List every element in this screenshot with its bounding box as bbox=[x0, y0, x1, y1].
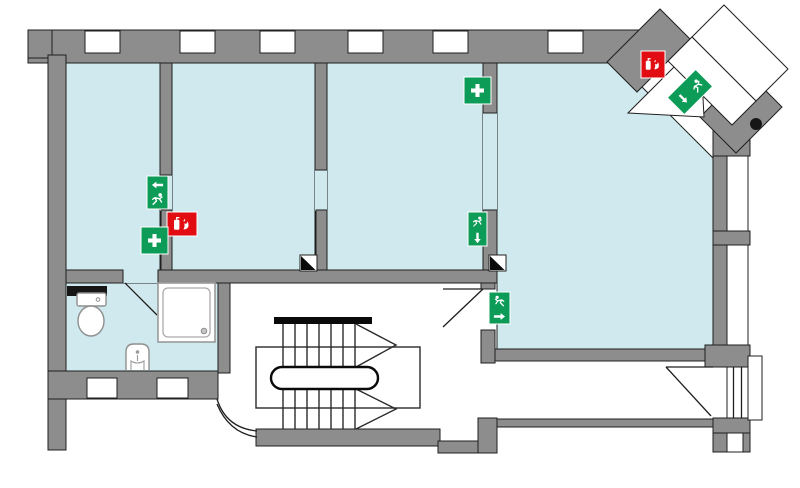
window-top-4 bbox=[348, 31, 383, 53]
window-top-5 bbox=[433, 31, 468, 53]
exit-sign-room1 bbox=[147, 176, 168, 209]
pillar-bottom bbox=[478, 418, 497, 453]
window-top-1 bbox=[85, 31, 120, 53]
first-aid-sign-room1 bbox=[141, 227, 168, 254]
wall-room1-room2-upper bbox=[160, 63, 172, 175]
pillar-corridor-top bbox=[481, 283, 495, 289]
first-aid-sign-main-room bbox=[464, 77, 491, 104]
wall-stairwell-step bbox=[438, 441, 478, 453]
fire-extinguisher-sign-entrance bbox=[641, 51, 665, 78]
floor-plan-page bbox=[0, 0, 800, 483]
wall-right-inner-2 bbox=[713, 245, 727, 345]
wall-rooms-bottom-left bbox=[66, 270, 123, 283]
floor-plan bbox=[0, 0, 800, 483]
wall-right-pier-1 bbox=[713, 231, 750, 245]
room-3 bbox=[327, 63, 483, 272]
window-top-3 bbox=[260, 31, 295, 53]
window-right-3 bbox=[727, 433, 743, 452]
stair-handrail bbox=[271, 367, 378, 389]
window-bathroom-2 bbox=[157, 378, 188, 398]
shower bbox=[158, 283, 215, 342]
staircase bbox=[256, 317, 420, 429]
stair-break-upper bbox=[356, 324, 396, 367]
wall-right-pier-2 bbox=[713, 418, 750, 433]
stair-break-lower bbox=[356, 389, 396, 429]
right-door bbox=[727, 367, 748, 418]
corridor-door-swing bbox=[443, 289, 483, 327]
wall-right-block-2 bbox=[705, 345, 750, 367]
wall-bathroom-bottom bbox=[48, 371, 218, 399]
right-door-swing bbox=[666, 367, 713, 416]
wall-right-inner-1 bbox=[713, 156, 727, 231]
exit-sign-hall bbox=[468, 212, 487, 246]
door-knob-dot bbox=[750, 118, 762, 130]
wall-room2-room3-upper bbox=[315, 63, 327, 170]
stair-steps-lower bbox=[283, 389, 355, 429]
stair-steps-upper bbox=[283, 324, 355, 367]
wall-main-room-bottom bbox=[495, 349, 713, 361]
bathroom-door-opening bbox=[123, 270, 158, 283]
wall-rooms-bottom-right bbox=[158, 270, 497, 283]
stair-top-edge bbox=[274, 317, 372, 324]
toilet bbox=[77, 293, 106, 336]
fire-extinguisher-sign-room1 bbox=[167, 212, 197, 236]
level-marker-2 bbox=[489, 255, 506, 271]
curved-wall bbox=[217, 399, 257, 437]
wall-stairwell-bottom bbox=[256, 429, 440, 446]
wall-right-inner-3 bbox=[713, 433, 727, 452]
level-marker-1 bbox=[300, 255, 317, 271]
wall-corridor-bottom bbox=[495, 419, 713, 427]
window-top-6 bbox=[548, 31, 583, 53]
right-door-exterior-step bbox=[748, 356, 762, 420]
passage-room2-room3 bbox=[315, 170, 327, 211]
pillar-corridor bbox=[481, 330, 495, 363]
wall-top-left-notch bbox=[28, 30, 52, 58]
passage-room3-main bbox=[483, 113, 497, 211]
window-top-2 bbox=[180, 31, 215, 53]
room-2 bbox=[172, 63, 315, 272]
sink bbox=[126, 344, 149, 370]
wall-room2-room3-lower bbox=[316, 210, 327, 272]
wall-right-outer-3 bbox=[743, 433, 750, 452]
curved-wall-inner bbox=[217, 404, 257, 437]
wall-bathroom-right bbox=[218, 283, 230, 373]
window-right-2 bbox=[727, 245, 748, 345]
window-right-1 bbox=[727, 156, 748, 231]
window-bathroom-1 bbox=[87, 378, 117, 398]
exit-sign-corridor bbox=[489, 292, 510, 324]
